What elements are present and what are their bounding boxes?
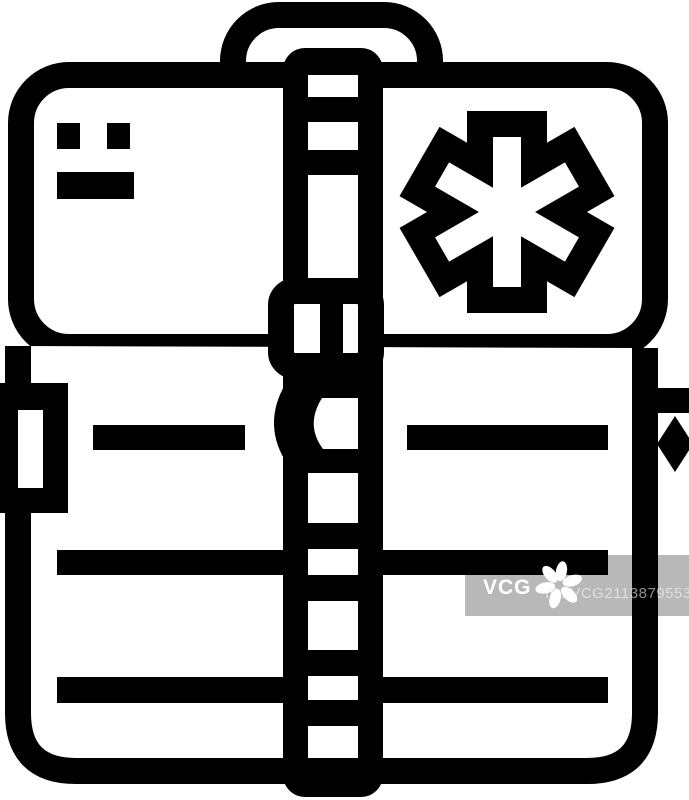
watermark-id-text: ID: VCG211387955315: [545, 585, 689, 602]
first-aid-bag-icon: VCG ID: VCG211387955315: [0, 0, 689, 800]
star-of-life-icon: [400, 111, 615, 313]
vcg-logo-text: VCG: [483, 576, 532, 599]
strap-buckle-icon: [281, 291, 371, 366]
stock-icon-image: VCG ID: VCG211387955315: [0, 0, 689, 800]
right-side-clasp-icon: [656, 388, 689, 472]
zipper-strap: [281, 48, 383, 797]
strap-fold: [287, 390, 299, 458]
watermark: VCG ID: VCG211387955315: [465, 555, 689, 616]
left-side-buckle-icon: [0, 383, 68, 513]
